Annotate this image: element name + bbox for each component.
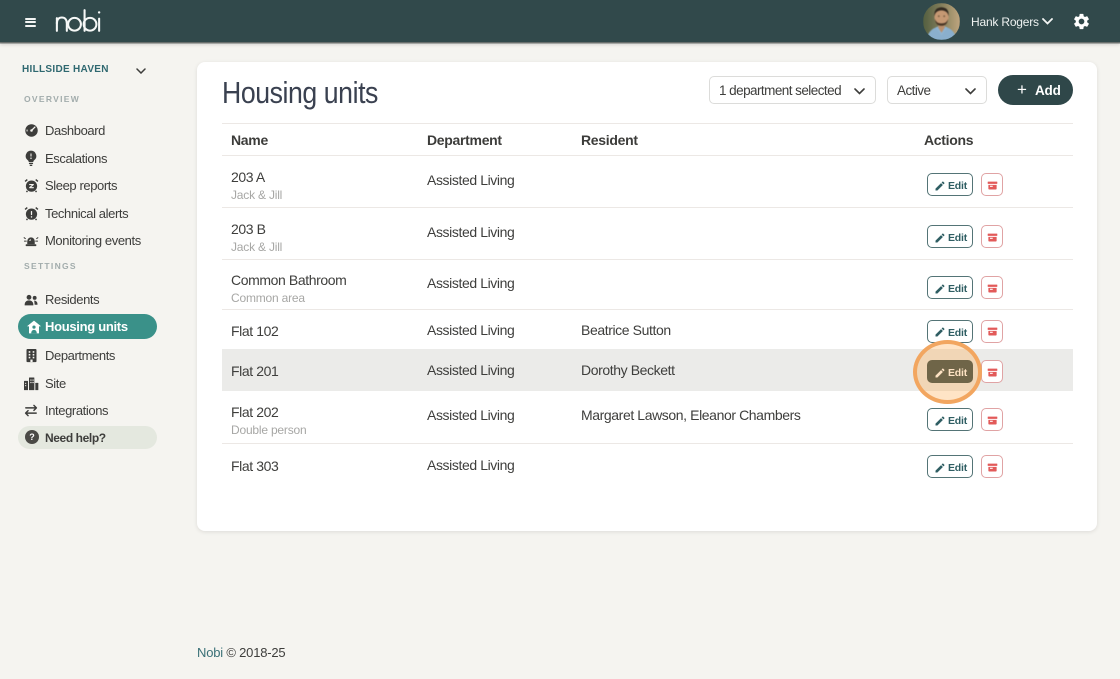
svg-text:?: ? [29, 432, 35, 442]
